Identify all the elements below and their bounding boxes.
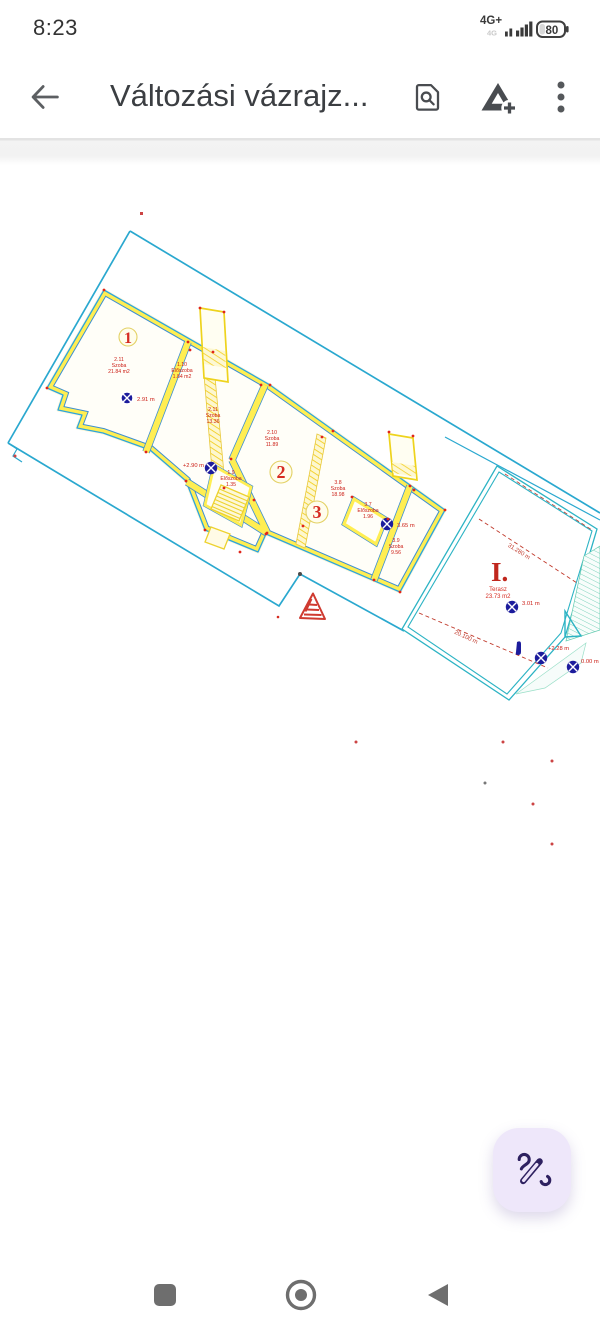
svg-text:31.280 m: 31.280 m	[506, 543, 530, 561]
svg-text:I.: I.	[491, 557, 508, 587]
svg-text:3: 3	[313, 502, 322, 522]
svg-text:11.89: 11.89	[266, 442, 279, 448]
svg-text:80: 80	[546, 25, 559, 37]
svg-text:1.84 m2: 1.84 m2	[173, 374, 192, 380]
svg-text:+2.90 m: +2.90 m	[183, 463, 204, 469]
svg-text:20.100 m: 20.100 m	[453, 630, 478, 646]
svg-text:+2.28 m: +2.28 m	[548, 646, 569, 652]
svg-text:13.36: 13.36	[207, 419, 220, 425]
svg-text:18.98: 18.98	[332, 492, 345, 498]
svg-text:21.84 m2: 21.84 m2	[108, 369, 130, 375]
svg-text:Terasz: Terasz	[489, 587, 507, 593]
svg-text:2.91 m: 2.91 m	[137, 397, 155, 403]
svg-text:3.65 m: 3.65 m	[397, 523, 415, 529]
svg-text:2: 2	[277, 462, 286, 482]
svg-text:1.96: 1.96	[363, 514, 373, 520]
svg-text:3.01 m: 3.01 m	[522, 601, 540, 607]
svg-text:23.73 m2: 23.73 m2	[485, 594, 511, 600]
svg-text:4G: 4G	[487, 29, 497, 38]
svg-text:4G+: 4G+	[480, 15, 502, 27]
svg-text:0.00 m: 0.00 m	[581, 659, 599, 665]
svg-text:1: 1	[124, 330, 132, 347]
svg-text:9.56: 9.56	[391, 550, 401, 556]
svg-text:1.35: 1.35	[226, 482, 236, 488]
